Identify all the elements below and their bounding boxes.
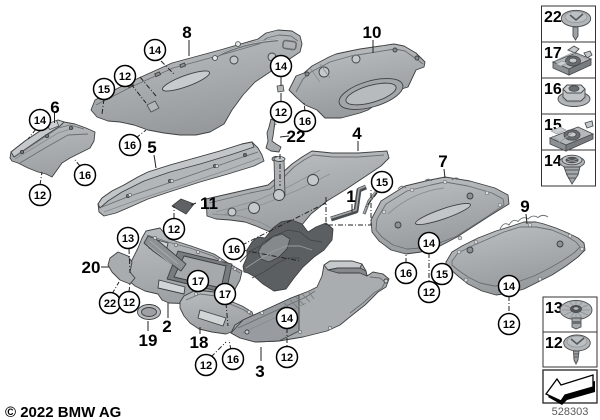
svg-text:15: 15 bbox=[436, 269, 448, 281]
svg-text:17: 17 bbox=[219, 289, 231, 301]
svg-text:18: 18 bbox=[190, 333, 209, 352]
svg-text:14: 14 bbox=[275, 61, 288, 73]
svg-text:16: 16 bbox=[228, 244, 240, 256]
svg-text:12: 12 bbox=[423, 287, 435, 299]
svg-text:12: 12 bbox=[281, 352, 293, 364]
svg-text:14: 14 bbox=[423, 238, 436, 250]
svg-text:13: 13 bbox=[122, 233, 134, 245]
svg-text:15: 15 bbox=[376, 177, 388, 189]
svg-text:4: 4 bbox=[352, 124, 362, 143]
svg-text:16: 16 bbox=[400, 268, 412, 280]
svg-text:1: 1 bbox=[346, 187, 355, 206]
svg-text:16: 16 bbox=[79, 170, 91, 182]
svg-text:16: 16 bbox=[227, 354, 239, 366]
svg-text:14: 14 bbox=[503, 281, 516, 293]
svg-text:6: 6 bbox=[50, 98, 59, 117]
svg-text:11: 11 bbox=[200, 194, 218, 213]
svg-text:10: 10 bbox=[363, 23, 382, 42]
svg-text:14: 14 bbox=[34, 115, 47, 127]
svg-text:16: 16 bbox=[299, 116, 311, 128]
svg-text:22: 22 bbox=[104, 298, 116, 310]
svg-text:22: 22 bbox=[544, 9, 562, 26]
svg-text:12: 12 bbox=[34, 190, 46, 202]
svg-text:20: 20 bbox=[82, 258, 101, 277]
svg-text:14: 14 bbox=[281, 313, 294, 325]
svg-text:8: 8 bbox=[182, 23, 191, 42]
svg-text:5: 5 bbox=[147, 138, 156, 157]
svg-text:12: 12 bbox=[200, 360, 212, 372]
svg-text:15: 15 bbox=[98, 84, 110, 96]
svg-text:3: 3 bbox=[255, 362, 264, 381]
svg-text:9: 9 bbox=[520, 197, 529, 216]
svg-text:12: 12 bbox=[503, 319, 515, 331]
svg-text:19: 19 bbox=[139, 331, 158, 350]
svg-text:16: 16 bbox=[124, 140, 136, 152]
svg-text:12: 12 bbox=[123, 297, 135, 309]
svg-text:© 2022 BMW AG: © 2022 BMW AG bbox=[5, 404, 121, 420]
svg-text:12: 12 bbox=[119, 71, 131, 83]
svg-text:17: 17 bbox=[192, 276, 204, 288]
svg-text:528303: 528303 bbox=[552, 406, 589, 418]
svg-text:2: 2 bbox=[162, 317, 171, 336]
svg-text:12: 12 bbox=[168, 224, 180, 236]
svg-text:12: 12 bbox=[545, 335, 563, 352]
svg-text:14: 14 bbox=[149, 45, 162, 57]
svg-text:12: 12 bbox=[275, 107, 287, 119]
svg-text:7: 7 bbox=[438, 152, 447, 171]
